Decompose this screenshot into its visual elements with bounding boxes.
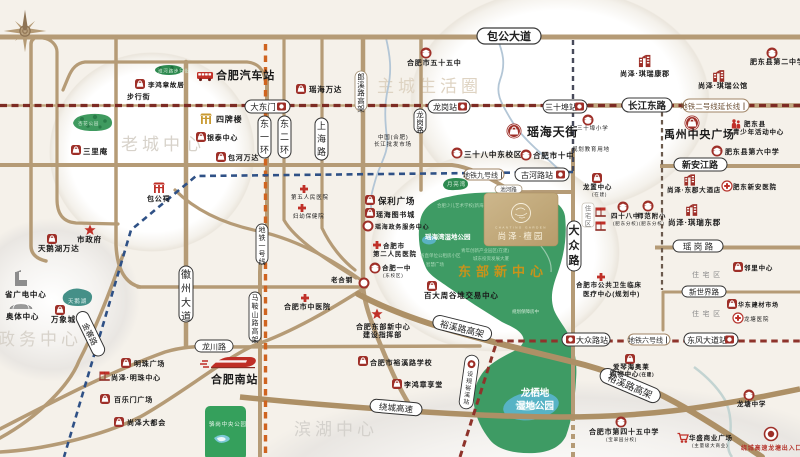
svg-text:尚泽·琪瑞东郡: 尚泽·琪瑞东郡 — [668, 217, 721, 227]
svg-text:肥东县: 肥东县 — [744, 119, 766, 128]
svg-text:保利广场: 保利广场 — [377, 196, 415, 206]
svg-text:滨湖中心: 滨湖中心 — [294, 420, 378, 439]
svg-text:杏花公园: 杏花公园 — [78, 120, 99, 127]
svg-text:住 宅 区: 住 宅 区 — [692, 309, 721, 318]
svg-text:合肥汽车站: 合肥汽车站 — [216, 68, 275, 82]
svg-text:肥东县第六中学: 肥东县第六中学 — [724, 147, 780, 156]
svg-text:邻里中心: 邻里中心 — [744, 263, 773, 272]
svg-text:银泰中心: 银泰中心 — [207, 133, 238, 142]
svg-text:龙川路: 龙川路 — [202, 342, 226, 352]
svg-text:规划教育用地: 规划教育用地 — [572, 145, 610, 153]
svg-text:骆岗中央公园: 骆岗中央公园 — [209, 420, 247, 428]
svg-text:新世界路: 新世界路 — [689, 287, 719, 297]
svg-text:瑶海万达: 瑶海万达 — [309, 84, 342, 94]
svg-text:三十埠小学: 三十埠小学 — [577, 124, 609, 132]
svg-text:规划保障房中: 规划保障房中 — [512, 308, 539, 315]
svg-text:瑶海天街: 瑶海天街 — [527, 124, 578, 139]
svg-text:合肥东部新中心: 合肥东部新中心 — [355, 322, 411, 331]
svg-text:老城中心: 老城中心 — [121, 135, 205, 154]
svg-text:大东门: 大东门 — [250, 102, 276, 112]
svg-text:东二环: 东二环 — [280, 118, 289, 155]
svg-text:龙塘中学: 龙塘中学 — [736, 399, 766, 408]
svg-text:三十八中东校区: 三十八中东校区 — [464, 149, 522, 159]
svg-text:合肥市五十五中: 合肥市五十五中 — [406, 58, 462, 67]
svg-text:华盛商业广场: 华盛商业广场 — [689, 433, 733, 442]
svg-text:地铁一号线: 地铁一号线 — [259, 225, 266, 266]
svg-text:(宝翠园分校): (宝翠园分校) — [606, 436, 637, 443]
svg-text:百乐门广场: 百乐门广场 — [114, 395, 153, 404]
svg-text:主城生活圈: 主城生活圈 — [377, 77, 482, 96]
svg-text:大众路站: 大众路站 — [576, 335, 608, 345]
svg-text:爱琴海奥莱: 爱琴海奥莱 — [613, 362, 650, 371]
svg-text:市政府: 市政府 — [77, 234, 102, 244]
svg-text:上海路: 上海路 — [317, 121, 326, 157]
svg-text:城东投资发展大厦: 城东投资发展大厦 — [473, 255, 509, 262]
svg-text:包公祠: 包公祠 — [147, 194, 170, 203]
svg-text:四牌楼: 四牌楼 — [216, 114, 242, 124]
svg-text:合肥一中: 合肥一中 — [381, 263, 411, 272]
svg-text:肥东县第二中学: 肥东县第二中学 — [749, 57, 800, 66]
svg-text:淮河路步行街: 淮河路步行街 — [158, 68, 190, 75]
svg-text:省广电中心: 省广电中心 — [4, 289, 47, 299]
svg-text:合肥市第四十五中学: 合肥市第四十五中学 — [588, 427, 659, 436]
svg-text:住 宅 区: 住 宅 区 — [692, 270, 721, 279]
svg-text:住宅区: 住宅区 — [585, 204, 592, 228]
svg-text:瑶海图书城: 瑶海图书城 — [376, 210, 415, 219]
svg-text:瑶 岗 路: 瑶 岗 路 — [683, 242, 714, 252]
svg-text:古河路站: 古河路站 — [521, 170, 553, 180]
svg-text:地铁九号线┃: 地铁九号线┃ — [463, 171, 505, 180]
svg-text:肥东新安医院: 肥东新安医院 — [733, 182, 777, 191]
svg-text:龙岗路: 龙岗路 — [416, 110, 424, 135]
svg-text:建设指挥部: 建设指挥部 — [363, 330, 402, 339]
svg-text:龙置中心: 龙置中心 — [582, 182, 612, 191]
svg-text:包河万达: 包河万达 — [228, 153, 259, 162]
svg-text:政务中心: 政务中心 — [0, 330, 82, 349]
svg-text:万象城: 万象城 — [50, 314, 76, 324]
svg-text:(肥东分校): (肥东分校) — [613, 220, 639, 227]
svg-text:百大周谷堆交易中心: 百大周谷堆交易中心 — [424, 290, 499, 300]
svg-text:东一环: 东一环 — [260, 118, 269, 155]
svg-text:步行街: 步行街 — [127, 92, 150, 101]
svg-text:(主量级大商业): (主量级大商业) — [692, 442, 728, 449]
svg-text:天鹅湖万达: 天鹅湖万达 — [38, 243, 80, 253]
svg-text:天鹅湖: 天鹅湖 — [68, 297, 87, 305]
svg-text:中国(合肥): 中国(合肥) — [378, 133, 408, 141]
svg-text:华东建材市场: 华东建材市场 — [738, 301, 779, 309]
svg-text:东风大道站: 东风大道站 — [687, 335, 727, 345]
svg-text:池河路: 池河路 — [500, 186, 517, 194]
svg-text:尚泽·明珠中心: 尚泽·明珠中心 — [111, 373, 161, 382]
svg-text:东部新中心: 东部新中心 — [458, 264, 548, 279]
svg-text:禹州中央广场: 禹州中央广场 — [664, 127, 735, 141]
svg-text:奥体中心: 奥体中心 — [5, 311, 39, 321]
svg-text:CHANTING GARDEN: CHANTING GARDEN — [495, 226, 547, 230]
svg-text:妇幼保健院: 妇幼保健院 — [293, 212, 325, 220]
svg-text:三十埠站: 三十埠站 — [545, 102, 577, 112]
svg-text:合肥市裕溪路学校: 合肥市裕溪路学校 — [369, 358, 433, 367]
svg-text:尚泽·琪瑞康郡: 尚泽·琪瑞康郡 — [620, 69, 670, 78]
svg-text:(肥东分校): (肥东分校) — [639, 220, 665, 227]
svg-text:第二人民医院: 第二人民医院 — [373, 249, 417, 258]
svg-text:地铁二号线延长线┃: 地铁二号线延长线┃ — [680, 101, 748, 111]
svg-text:四十八中: 四十八中 — [611, 211, 640, 220]
svg-text:智慧广场: 智慧广场 — [426, 261, 444, 268]
svg-text:龙塘医院: 龙塘医院 — [744, 315, 769, 323]
svg-text:郎溪路高架: 郎溪路高架 — [357, 72, 365, 114]
svg-text:(东校区): (东校区) — [383, 272, 404, 279]
svg-text:明珠广场: 明珠广场 — [134, 359, 165, 368]
svg-text:合肥南站: 合肥南站 — [211, 372, 258, 386]
svg-text:绕城高速龙塘出入口: 绕城高速龙塘出入口 — [741, 444, 800, 452]
svg-text:青年创新产业园区(在建): 青年创新产业园区(在建) — [461, 247, 509, 254]
svg-text:省直单位公租房小区: 省直单位公租房小区 — [420, 252, 461, 259]
svg-text:李鸿章故居: 李鸿章故居 — [147, 80, 185, 89]
svg-text:尚泽大都会: 尚泽大都会 — [127, 418, 166, 427]
svg-text:地铁六号线┃: 地铁六号线┃ — [628, 336, 670, 345]
svg-text:长江批发市场: 长江批发市场 — [374, 140, 412, 148]
svg-text:三里庵: 三里庵 — [83, 146, 108, 156]
svg-text:老合钢: 老合钢 — [330, 275, 353, 284]
svg-text:合肥市公共卫生临床: 合肥市公共卫生临床 — [575, 280, 642, 289]
svg-text:月亮湾: 月亮湾 — [447, 180, 466, 188]
svg-text:新安江路: 新安江路 — [682, 159, 719, 170]
svg-text:(在建): (在建) — [592, 191, 607, 198]
svg-text:瑶海湾湿地公园: 瑶海湾湿地公园 — [425, 232, 471, 241]
svg-text:合肥市十中: 合肥市十中 — [533, 150, 575, 160]
svg-text:医疗中心(规划中): 医疗中心(规划中) — [583, 289, 640, 298]
svg-text:包公大道: 包公大道 — [486, 29, 531, 43]
svg-text:长江东路: 长江东路 — [628, 100, 667, 112]
svg-text:李鸿章享堂: 李鸿章享堂 — [403, 380, 443, 389]
svg-text:尚泽·琪瑞公馆: 尚泽·琪瑞公馆 — [698, 81, 748, 90]
svg-text:尚泽·檀园: 尚泽·檀园 — [498, 231, 545, 241]
svg-text:尚泽·东郡大酒店: 尚泽·东郡大酒店 — [667, 185, 721, 194]
svg-text:青少年活动中心: 青少年活动中心 — [733, 127, 784, 136]
svg-text:瑶海政务服务中心: 瑶海政务服务中心 — [375, 223, 429, 231]
svg-text:大众路: 大众路 — [569, 223, 581, 267]
svg-text:龙岗站: 龙岗站 — [433, 102, 457, 112]
svg-text:第五人民医院: 第五人民医院 — [291, 193, 329, 201]
svg-text:师范附小: 师范附小 — [637, 211, 666, 220]
svg-text:合肥市中医院: 合肥市中医院 — [283, 302, 331, 311]
svg-text:合肥市: 合肥市 — [382, 241, 405, 250]
